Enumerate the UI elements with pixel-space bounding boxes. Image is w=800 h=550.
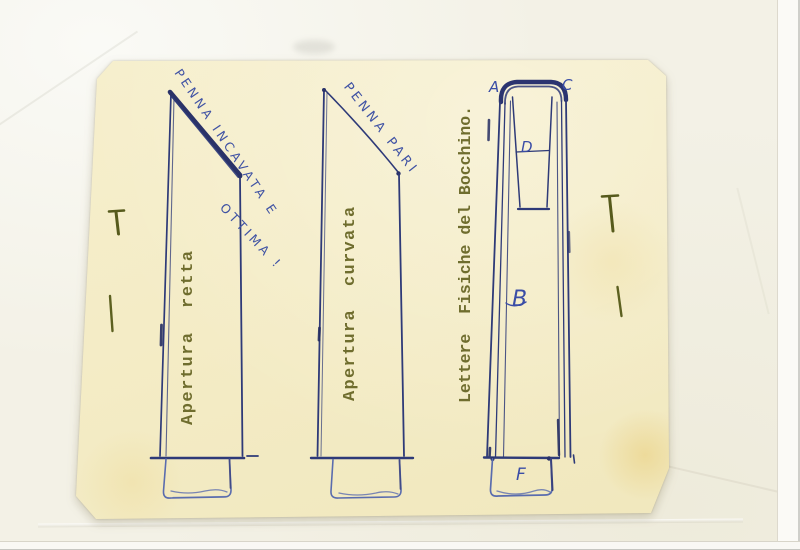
letter-d-label: D — [521, 138, 533, 156]
right-mouthpiece-drawing: A C D B F — [484, 76, 575, 496]
caption-lettere-fisiche-del-bocchino: Lettere Fisiche del Bocchino. — [456, 106, 475, 403]
left-pin — [109, 211, 124, 332]
caption-apertura-retta: Apertura retta — [179, 249, 198, 425]
scanned-document: A C D B F PENNA INCAVATA E OTTIMA ! PENN… — [0, 0, 800, 550]
caption-apertura-curvata: Apertura curvata — [341, 205, 360, 401]
letter-f-label: F — [516, 465, 526, 485]
right-pin — [602, 196, 622, 317]
letter-b-label: B — [512, 287, 527, 312]
ink-drawing-layer: A C D B F — [0, 0, 800, 550]
letter-a-label: A — [488, 78, 499, 96]
letter-c-label: C — [562, 76, 573, 94]
